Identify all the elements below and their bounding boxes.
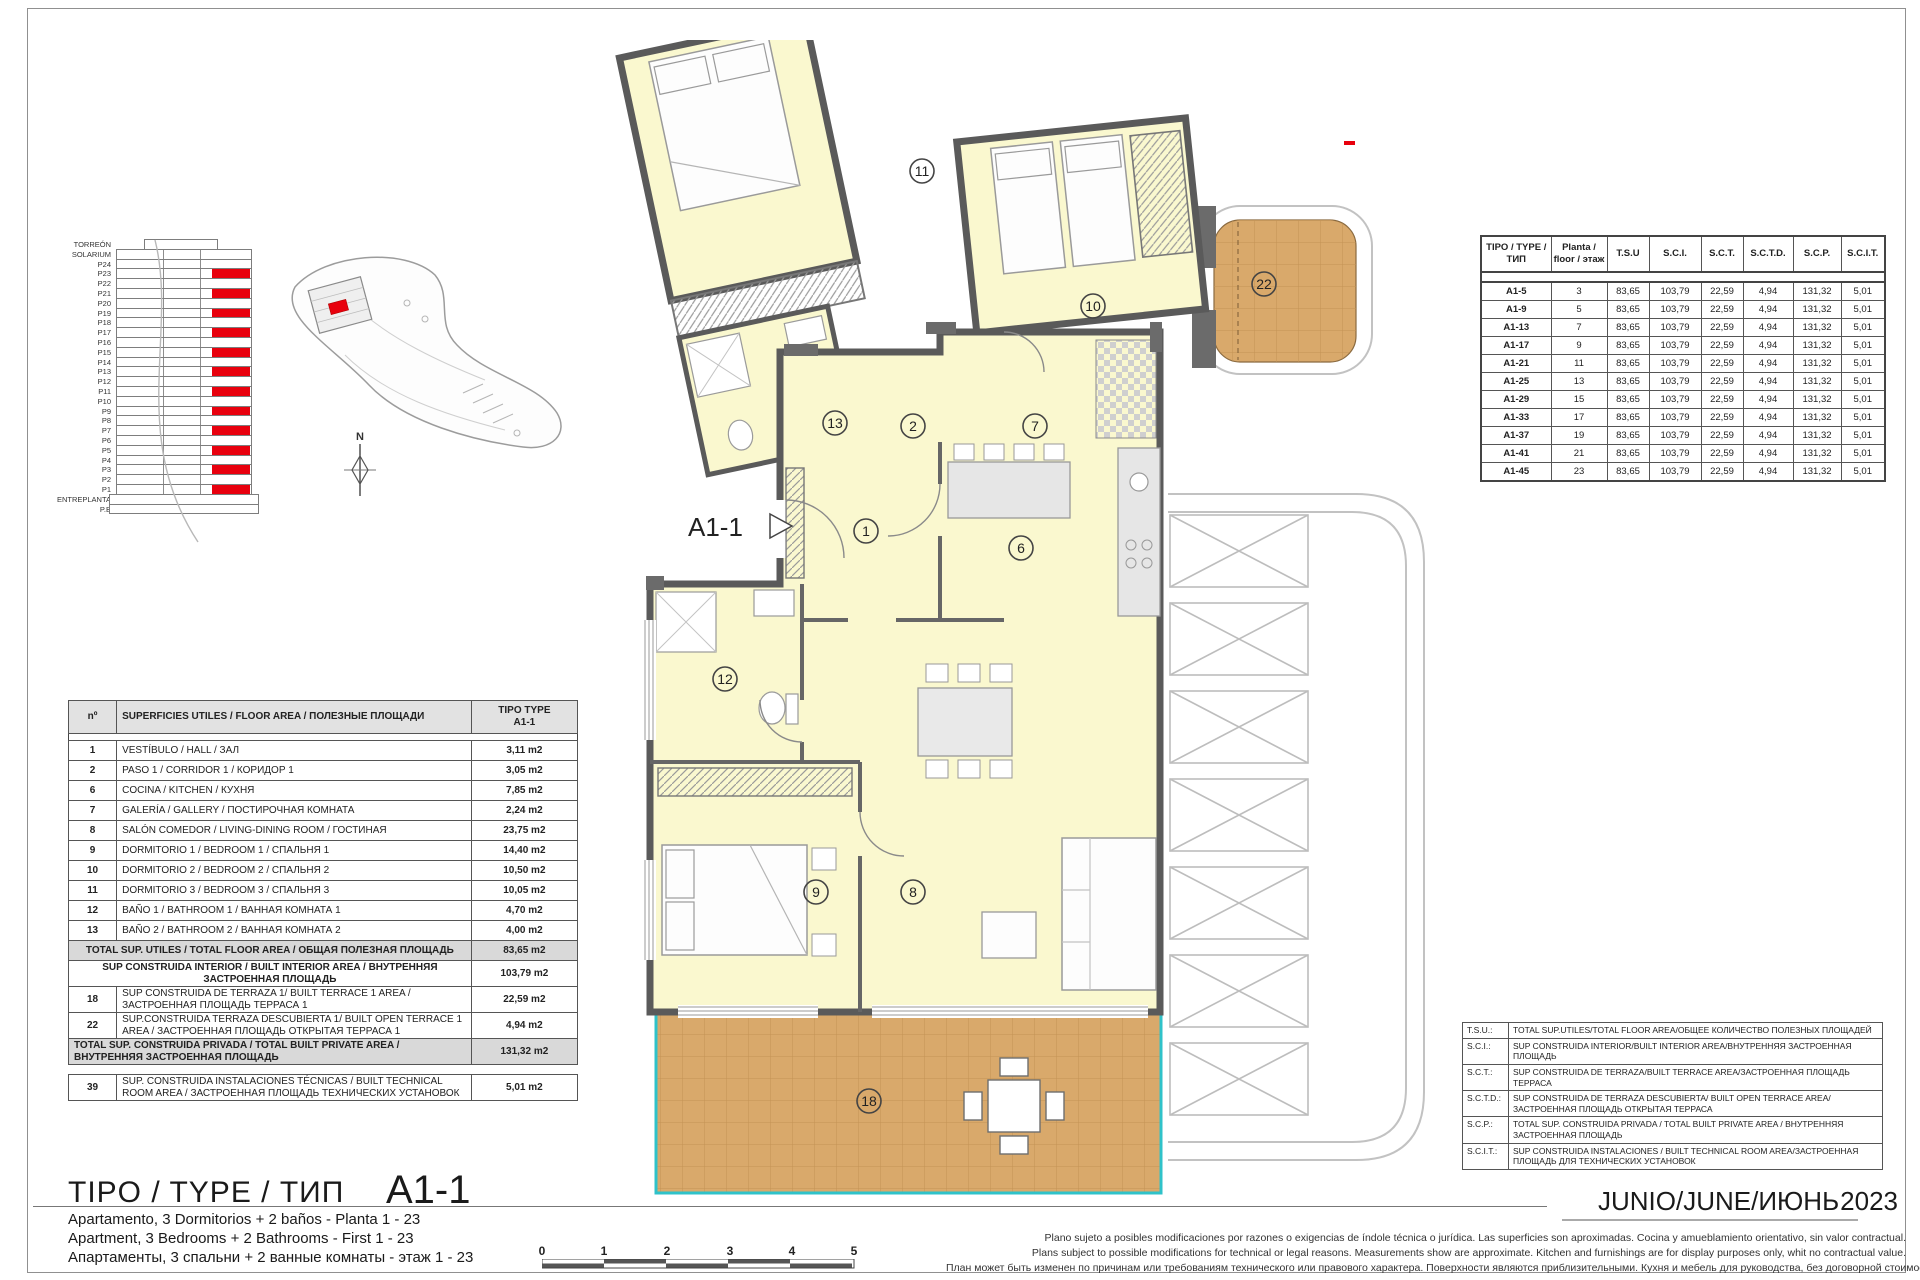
- table-row: 10DORMITORIO 2 / BEDROOM 2 / СПАЛЬНЯ 210…: [69, 861, 578, 881]
- disclaimer-es: Plano sujeto a posibles modificaciones p…: [946, 1231, 1906, 1246]
- table-cell: 4,94: [1743, 354, 1793, 372]
- legend-row: T.S.U.:TOTAL SUP.UTILES/TOTAL FLOOR AREA…: [1463, 1023, 1883, 1039]
- table-cell: 131,32: [1793, 462, 1841, 481]
- table-cell: 10: [69, 861, 117, 881]
- bedroom2-wing: [957, 118, 1206, 333]
- table-cell: 83,65: [1607, 282, 1649, 301]
- table-cell: 5,01: [1841, 444, 1885, 462]
- table-cell: 83,65: [1607, 390, 1649, 408]
- table-cell: 131,32: [1793, 354, 1841, 372]
- table-cell: 8: [69, 821, 117, 841]
- table-row: 1VESTÍBULO / HALL / ЗАЛ3,11 m2: [69, 741, 578, 761]
- table-cell: 22,59: [1701, 282, 1743, 301]
- table-row: A1-9583,65103,7922,594,94131,325,01: [1481, 300, 1885, 318]
- bed: [662, 845, 807, 955]
- table-cell: 6: [69, 781, 117, 801]
- table-cell: 22,59: [1701, 444, 1743, 462]
- table-row: A1-17983,65103,7922,594,94131,325,01: [1481, 336, 1885, 354]
- table-cell: 131,32: [1793, 390, 1841, 408]
- table-cell: 131,32: [1793, 282, 1841, 301]
- highlighted-floor-marker: [212, 367, 250, 376]
- table-cell: 22,59: [1701, 354, 1743, 372]
- table-cell: 22,59: [1701, 372, 1743, 390]
- table-cell: 103,79: [1649, 462, 1701, 481]
- date-underline: [1562, 1219, 1858, 1221]
- col-planta: Planta / floor / этаж: [1551, 236, 1607, 272]
- table-cell: 3,05 m2: [471, 761, 577, 781]
- type-floors-table: TIPO / TYPE / ТИП Planta / floor / этаж …: [1480, 235, 1884, 482]
- table-cell: 10,05 m2: [471, 881, 577, 901]
- table-cell: 5,01: [1841, 336, 1885, 354]
- table-row: A1-251383,65103,7922,594,94131,325,01: [1481, 372, 1885, 390]
- table-cell: A1-13: [1481, 318, 1551, 336]
- elevation-rows: TORREÓNSOLARIUMP24P23P22P21P20P19P18P17P…: [60, 239, 270, 514]
- bed: [991, 142, 1066, 274]
- table-cell: 131,32: [1793, 426, 1841, 444]
- table-cell: 103,79: [1649, 426, 1701, 444]
- svg-text:1: 1: [862, 523, 870, 539]
- table-cell: 5,01: [1841, 426, 1885, 444]
- table-cell: 4,94: [1743, 462, 1793, 481]
- dining-table: [918, 688, 1012, 756]
- scale-tick: 3: [727, 1244, 734, 1258]
- table-cell: 22,59: [1701, 426, 1743, 444]
- table-cell: 103,79: [1649, 390, 1701, 408]
- table-cell: 21: [1551, 444, 1607, 462]
- apartment-description: Apartamento, 3 Dormitorios + 2 baños - P…: [68, 1210, 473, 1267]
- table-cell: 5,01: [1841, 390, 1885, 408]
- table-cell: BAÑO 1 / BATHROOM 1 / ВАННАЯ КОМНАТА 1: [117, 901, 472, 921]
- table-cell: 83,65: [1607, 372, 1649, 390]
- table-cell: 83,65: [1607, 336, 1649, 354]
- table-row: 12BAÑO 1 / BATHROOM 1 / ВАННАЯ КОМНАТА 1…: [69, 901, 578, 921]
- table-cell: 4,94: [1743, 390, 1793, 408]
- table-cell: 4,94: [1743, 282, 1793, 301]
- table-cell: 5,01: [1841, 354, 1885, 372]
- table-row: 7GALERÍA / GALLERY / ПОСТИРОЧНАЯ КОМНАТА…: [69, 801, 578, 821]
- open-terrace-row: 22 SUP.CONSTRUIDA TERRAZA DESCUBIERTA 1/…: [69, 1013, 578, 1039]
- table-cell: 2,24 m2: [471, 801, 577, 821]
- highlighted-floor-marker: [212, 348, 250, 357]
- table-cell: 22,59: [1701, 318, 1743, 336]
- table-cell: A1-33: [1481, 408, 1551, 426]
- highlighted-floor-marker: [212, 465, 250, 474]
- table-cell: 9: [1551, 336, 1607, 354]
- table-cell: A1-29: [1481, 390, 1551, 408]
- table-cell: A1-37: [1481, 426, 1551, 444]
- highlighted-floor-marker: [212, 446, 250, 455]
- table-cell: 103,79: [1649, 354, 1701, 372]
- table-cell: 131,32: [1793, 408, 1841, 426]
- scale-tick: 1: [601, 1244, 608, 1258]
- table-cell: 17: [1551, 408, 1607, 426]
- table-cell: A1-21: [1481, 354, 1551, 372]
- unit-label: A1-1: [688, 512, 743, 542]
- legend-row: S.C.I.:SUP CONSTRUIDA INTERIOR/BUILT INT…: [1463, 1038, 1883, 1064]
- legend-row: S.C.P.:TOTAL SUP. CONSTRUIDA PRIVADA / T…: [1463, 1117, 1883, 1143]
- scale-tick: 5: [851, 1244, 858, 1258]
- scale-tick: 0: [539, 1244, 546, 1258]
- table-header-row: TIPO / TYPE / ТИП Planta / floor / этаж …: [1481, 236, 1885, 272]
- technical-room-row: 39 SUP. CONSTRUIDA INSTALACIONES TÉCNICA…: [69, 1075, 578, 1101]
- table-cell: 22,59: [1701, 336, 1743, 354]
- table-cell: BAÑO 2 / BATHROOM 2 / ВАННАЯ КОМНАТА 2: [117, 921, 472, 941]
- col-tipo: TIPO / TYPE / ТИП: [1481, 236, 1551, 272]
- table-cell: 4,94: [1743, 426, 1793, 444]
- table-cell: 3: [1551, 282, 1607, 301]
- floor-label: P.B: [60, 504, 116, 515]
- table-cell: 13: [69, 921, 117, 941]
- col-scit: S.C.I.T.: [1841, 236, 1885, 272]
- table-cell: 7,85 m2: [471, 781, 577, 801]
- highlighted-floor-marker: [212, 485, 250, 494]
- table-cell: 22,59: [1701, 462, 1743, 481]
- svg-text:2: 2: [909, 418, 917, 434]
- area-header-row: nº SUPERFICIES UTILES / FLOOR AREA / ПОЛ…: [69, 701, 578, 734]
- table-cell: 7: [1551, 318, 1607, 336]
- table-cell: 103,79: [1649, 336, 1701, 354]
- table-cell: 14,40 m2: [471, 841, 577, 861]
- scale-tick: 4: [789, 1244, 796, 1258]
- table-cell: 10,50 m2: [471, 861, 577, 881]
- table-cell: 83,65: [1607, 300, 1649, 318]
- table-cell: 4,94: [1743, 372, 1793, 390]
- table-row: A1-13783,65103,7922,594,94131,325,01: [1481, 318, 1885, 336]
- table-cell: 12: [69, 901, 117, 921]
- terrace1-row: 18 SUP CONSTRUIDA DE TERRAZA 1/ BUILT TE…: [69, 987, 578, 1013]
- col-sctd: S.C.T.D.: [1743, 236, 1793, 272]
- table-cell: 83,65: [1607, 354, 1649, 372]
- site-plan: [285, 245, 575, 495]
- table-row: A1-5383,65103,7922,594,94131,325,01: [1481, 282, 1885, 301]
- table-cell: 4,94: [1743, 336, 1793, 354]
- gallery-floor: [1096, 340, 1156, 438]
- highlighted-floor-marker: [212, 289, 250, 298]
- table-cell: 4,94: [1743, 408, 1793, 426]
- scale-bar-graphic: [542, 1259, 856, 1269]
- disclaimer-ru: План может быть изменен по причинам или …: [946, 1261, 1906, 1276]
- sheet-title: TIPO / TYPE / ТИП: [68, 1176, 344, 1210]
- table-cell: 2: [69, 761, 117, 781]
- table-cell: VESTÍBULO / HALL / ЗАЛ: [117, 741, 472, 761]
- table-cell: 5,01: [1841, 462, 1885, 481]
- kitchen-island: [948, 462, 1070, 518]
- sink: [1130, 473, 1148, 491]
- table-cell: 103,79: [1649, 408, 1701, 426]
- col-number: nº: [69, 701, 117, 734]
- description-en: Apartment, 3 Bedrooms + 2 Bathrooms - Fi…: [68, 1229, 473, 1248]
- date-block: JUNIO/JUNE/ИЮНЬ 2023: [1598, 1186, 1898, 1217]
- table-cell: GALERÍA / GALLERY / ПОСТИРОЧНАЯ КОМНАТА: [117, 801, 472, 821]
- table-cell: 131,32: [1793, 444, 1841, 462]
- table-cell: 83,65: [1607, 318, 1649, 336]
- highlighted-floor-marker: [212, 387, 250, 396]
- disclaimer: Plano sujeto a posibles modificaciones p…: [946, 1231, 1906, 1276]
- table-cell: 19: [1551, 426, 1607, 444]
- table-cell: 131,32: [1793, 336, 1841, 354]
- svg-text:12: 12: [717, 671, 733, 687]
- elevation-row: P.B: [60, 504, 270, 515]
- total-private-area-row: TOTAL SUP. CONSTRUIDA PRIVADA / TOTAL BU…: [69, 1039, 578, 1065]
- table-cell: 15: [1551, 390, 1607, 408]
- table-cell: 83,65: [1607, 444, 1649, 462]
- col-sct: S.C.T.: [1701, 236, 1743, 272]
- svg-text:7: 7: [1031, 418, 1039, 434]
- legend-row: S.C.T.D.:SUP CONSTRUIDA DE TERRAZA DESCU…: [1463, 1091, 1883, 1117]
- svg-text:18: 18: [861, 1093, 877, 1109]
- table-cell: 83,65: [1607, 426, 1649, 444]
- sofa: [1062, 838, 1156, 990]
- total-floor-area-row: TOTAL SUP. UTILES / TOTAL FLOOR AREA / О…: [69, 941, 578, 961]
- table-cell: COCINA / KITCHEN / КУХНЯ: [117, 781, 472, 801]
- table-cell: 103,79: [1649, 372, 1701, 390]
- table-row: 11DORMITORIO 3 / BEDROOM 3 / СПАЛЬНЯ 310…: [69, 881, 578, 901]
- table-cell: A1-25: [1481, 372, 1551, 390]
- col-tsu: T.S.U: [1607, 236, 1649, 272]
- technical-room-table: 39 SUP. CONSTRUIDA INSTALACIONES TÉCNICA…: [68, 1074, 578, 1101]
- hall-wardrobe: [786, 468, 804, 578]
- table-cell: 103,79: [1649, 300, 1701, 318]
- table-row: A1-331783,65103,7922,594,94131,325,01: [1481, 408, 1885, 426]
- table-cell: DORMITORIO 2 / BEDROOM 2 / СПАЛЬНЯ 2: [117, 861, 472, 881]
- table-cell: 4,70 m2: [471, 901, 577, 921]
- table-cell: DORMITORIO 1 / BEDROOM 1 / СПАЛЬНЯ 1: [117, 841, 472, 861]
- table-cell: 5,01: [1841, 318, 1885, 336]
- svg-text:6: 6: [1017, 540, 1025, 556]
- table-cell: A1-9: [1481, 300, 1551, 318]
- col-description: SUPERFICIES UTILES / FLOOR AREA / ПОЛЕЗН…: [117, 701, 472, 734]
- table-row: A1-211183,65103,7922,594,94131,325,01: [1481, 354, 1885, 372]
- table-cell: 7: [69, 801, 117, 821]
- table-cell: 22,59: [1701, 390, 1743, 408]
- table-cell: A1-41: [1481, 444, 1551, 462]
- table-cell: 5,01: [1841, 282, 1885, 301]
- table-row: A1-452383,65103,7922,594,94131,325,01: [1481, 462, 1885, 481]
- table-cell: 83,65: [1607, 408, 1649, 426]
- table-cell: SALÓN COMEDOR / LIVING-DINING ROOM / ГОС…: [117, 821, 472, 841]
- table-cell: 103,79: [1649, 444, 1701, 462]
- date-month: JUNIO/JUNE/ИЮНЬ: [1598, 1186, 1839, 1217]
- table-cell: 13: [1551, 372, 1607, 390]
- table-cell: 4,94: [1743, 318, 1793, 336]
- table-cell: 4,94: [1743, 444, 1793, 462]
- open-terrace-22: [1192, 206, 1356, 368]
- description-es: Apartamento, 3 Dormitorios + 2 baños - P…: [68, 1210, 473, 1229]
- svg-text:8: 8: [909, 884, 917, 900]
- armchair: [982, 912, 1036, 958]
- svg-text:11: 11: [915, 163, 930, 179]
- table-cell: 11: [69, 881, 117, 901]
- table-cell: 22,59: [1701, 408, 1743, 426]
- table-cell: 5: [1551, 300, 1607, 318]
- table-row: 2PASO 1 / CORRIDOR 1 / КОРИДОР 13,05 m2: [69, 761, 578, 781]
- table-row: 6COCINA / KITCHEN / КУХНЯ7,85 m2: [69, 781, 578, 801]
- table-cell: A1-5: [1481, 282, 1551, 301]
- table-cell: A1-45: [1481, 462, 1551, 481]
- col-sci: S.C.I.: [1649, 236, 1701, 272]
- building-elevation-key: TORREÓNSOLARIUMP24P23P22P21P20P19P18P17P…: [60, 240, 270, 542]
- wardrobe: [658, 768, 852, 796]
- svg-text:N: N: [356, 431, 364, 443]
- table-row: A1-412183,65103,7922,594,94131,325,01: [1481, 444, 1885, 462]
- table-cell: A1-17: [1481, 336, 1551, 354]
- table-cell: 4,94: [1743, 300, 1793, 318]
- table-row: 8SALÓN COMEDOR / LIVING-DINING ROOM / ГО…: [69, 821, 578, 841]
- legend-row: S.C.T.:SUP CONSTRUIDA DE TERRAZA/BUILT T…: [1463, 1064, 1883, 1090]
- table-cell: 131,32: [1793, 372, 1841, 390]
- north-arrow: N: [330, 428, 390, 508]
- sheet-type-code: A1-1: [386, 1168, 471, 1213]
- table-cell: 103,79: [1649, 282, 1701, 301]
- table-cell: 4,00 m2: [471, 921, 577, 941]
- bed: [1060, 135, 1135, 267]
- table-cell: 11: [1551, 354, 1607, 372]
- table-row: 9DORMITORIO 1 / BEDROOM 1 / СПАЛЬНЯ 114,…: [69, 841, 578, 861]
- floor-areas-table: nº SUPERFICIES UTILES / FLOOR AREA / ПОЛ…: [68, 700, 578, 1101]
- table-cell: 5,01: [1841, 408, 1885, 426]
- table-cell: DORMITORIO 3 / BEDROOM 3 / СПАЛЬНЯ 3: [117, 881, 472, 901]
- table-cell: 1: [69, 741, 117, 761]
- disclaimer-en: Plans subject to possible modifications …: [946, 1246, 1906, 1261]
- table-row: A1-371983,65103,7922,594,94131,325,01: [1481, 426, 1885, 444]
- table-cell: 131,32: [1793, 318, 1841, 336]
- description-ru: Апартаменты, 3 спальни + 2 ванные комнат…: [68, 1248, 473, 1267]
- table-cell: 131,32: [1793, 300, 1841, 318]
- highlighted-floor-marker: [212, 328, 250, 337]
- table-row: A1-291583,65103,7922,594,94131,325,01: [1481, 390, 1885, 408]
- highlighted-floor-marker: [212, 269, 250, 278]
- table-cell: 83,65: [1607, 462, 1649, 481]
- table-cell: 103,79: [1649, 318, 1701, 336]
- svg-text:10: 10: [1085, 298, 1101, 314]
- table-row: 13BAÑO 2 / BATHROOM 2 / ВАННАЯ КОМНАТА 2…: [69, 921, 578, 941]
- built-interior-row: SUP CONSTRUIDA INTERIOR / BUILT INTERIOR…: [69, 961, 578, 987]
- highlighted-floor-marker: [212, 309, 250, 318]
- floor-plan: A1-1 1 2 6 7 8 9 10 11 12 13 18 22: [600, 40, 1470, 1210]
- svg-text:22: 22: [1256, 276, 1272, 292]
- table-cell: 23,75 m2: [471, 821, 577, 841]
- svg-text:13: 13: [827, 415, 843, 431]
- legend-row: S.C.I.T.:SUP CONSTRUIDA INSTALACIONES / …: [1463, 1143, 1883, 1169]
- highlighted-floor-marker: [212, 407, 250, 416]
- table-cell: 5,01: [1841, 372, 1885, 390]
- scale-tick: 2: [664, 1244, 671, 1258]
- table-cell: 5,01: [1841, 300, 1885, 318]
- table-cell: 23: [1551, 462, 1607, 481]
- terrace-18: [655, 1002, 1162, 1194]
- highlighted-floor-marker: [212, 426, 250, 435]
- table-cell: 3,11 m2: [471, 741, 577, 761]
- date-year: 2023: [1840, 1186, 1898, 1217]
- abbreviations-legend: T.S.U.:TOTAL SUP.UTILES/TOTAL FLOOR AREA…: [1462, 1022, 1882, 1170]
- svg-text:9: 9: [812, 884, 820, 900]
- col-scp: S.C.P.: [1793, 236, 1841, 272]
- parking-spaces: [1170, 515, 1308, 1115]
- floor-box: [109, 504, 259, 515]
- col-type: TIPO TYPEA1-1: [471, 701, 577, 734]
- table-cell: 9: [69, 841, 117, 861]
- scale-bar: 0 1 2 3 4 5: [540, 1244, 860, 1272]
- table-cell: PASO 1 / CORRIDOR 1 / КОРИДОР 1: [117, 761, 472, 781]
- table-cell: 22,59: [1701, 300, 1743, 318]
